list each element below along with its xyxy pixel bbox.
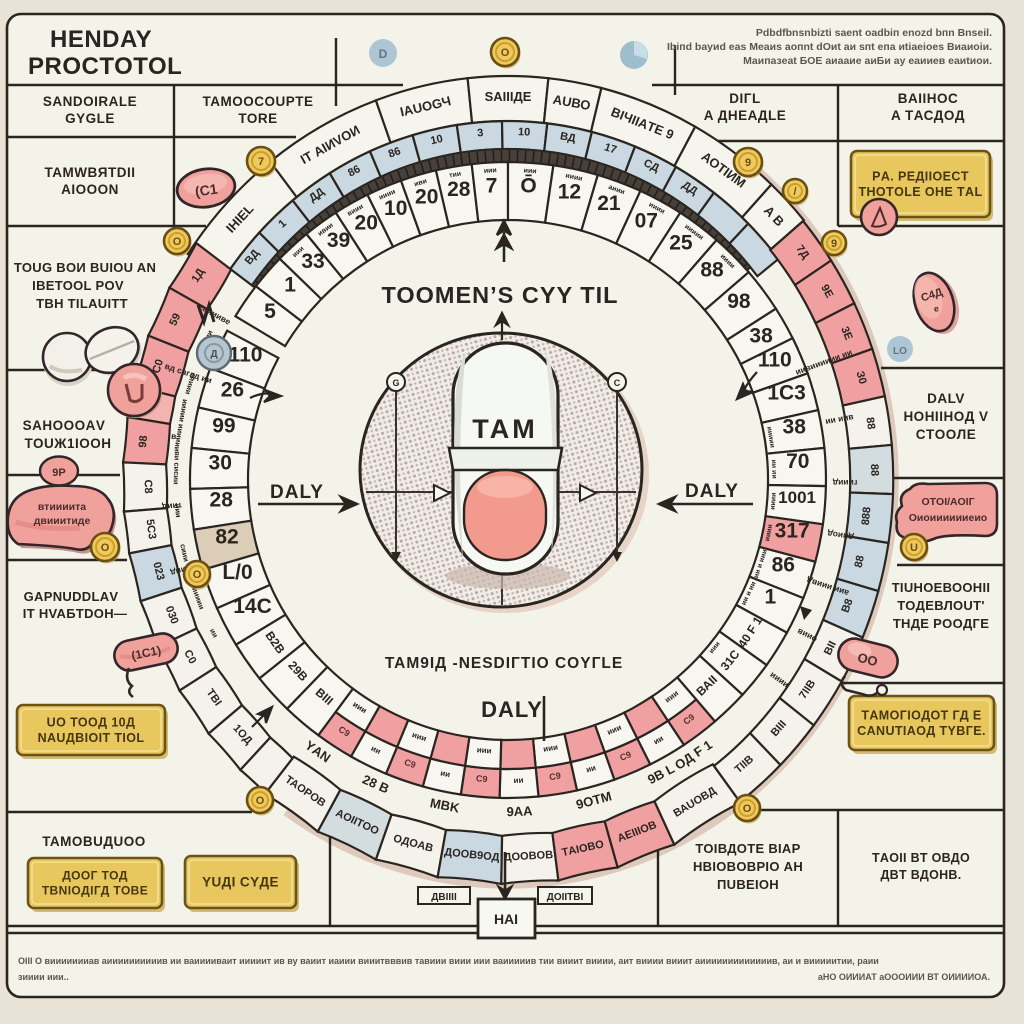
svg-text:9: 9 xyxy=(831,238,837,250)
svg-text:иии: иии xyxy=(484,167,497,175)
svg-text:TOUG BOИ BUIOU AN: TOUG BOИ BUIOU AN xyxy=(14,260,156,275)
svg-text:DALY: DALY xyxy=(270,482,324,503)
svg-text:YUДI CYДE: YUДI CYДE xyxy=(202,875,279,890)
svg-text:ии: ии xyxy=(513,776,523,785)
svg-text:TAMWBЯTDII: TAMWBЯTDII xyxy=(45,165,136,180)
svg-text:O: O xyxy=(501,47,510,59)
svg-text:ОTОI/АОIГ: ОTОI/АОIГ xyxy=(921,496,974,508)
svg-text:GAРNUDDLАV: GAРNUDDLАV xyxy=(24,589,119,604)
svg-text:иии: иии xyxy=(523,167,536,175)
svg-text:TНOTОLE OНE TАL: TНOTОLE OНE TАL xyxy=(858,185,982,199)
svg-text:DIГL: DIГL xyxy=(729,91,760,106)
svg-text:1С3: 1С3 xyxy=(767,381,806,404)
svg-text:98: 98 xyxy=(727,290,751,313)
svg-text:20: 20 xyxy=(355,211,378,234)
svg-text:9Р: 9Р xyxy=(52,467,65,479)
svg-text:12: 12 xyxy=(558,181,581,204)
svg-text:двииитиде: двииитиде xyxy=(34,515,91,527)
svg-text:9: 9 xyxy=(745,157,751,169)
svg-text:TAM9IД -NESDIГTIO COYГLE: TAM9IД -NESDIГTIO COYГLE xyxy=(385,655,623,672)
svg-text:O: O xyxy=(193,569,202,581)
svg-text:110: 110 xyxy=(758,349,792,372)
svg-text:С9: С9 xyxy=(549,770,562,782)
svg-text:TАOII ВT OВДO: TАOII ВT OВДO xyxy=(872,851,970,865)
svg-text:TIUНOЕВОOНII: TIUНOЕВОOНII xyxy=(892,580,991,595)
svg-text:1: 1 xyxy=(764,586,776,609)
svg-text:С8: С8 xyxy=(142,479,154,493)
svg-text:28: 28 xyxy=(447,178,471,201)
svg-text:CTОOЛE: CTОOЛE xyxy=(916,427,976,442)
svg-text:10: 10 xyxy=(518,126,531,139)
svg-text:DALV: DALV xyxy=(927,391,965,406)
svg-text:SAHOOOАV: SAHOOOАV xyxy=(23,418,106,433)
svg-text:D: D xyxy=(379,47,388,61)
svg-text:88: 88 xyxy=(868,464,880,477)
svg-text:O: O xyxy=(743,803,752,815)
svg-text:ДOIITВI: ДOIITВI xyxy=(547,892,584,903)
svg-text:DALY: DALY xyxy=(685,481,739,502)
svg-text:НOНIIНOД V: НOНIIНOД V xyxy=(903,409,988,424)
svg-text:98: 98 xyxy=(137,435,150,448)
svg-text:TOДЕВЛOUТ': TOДЕВЛOUТ' xyxy=(897,598,984,613)
svg-text:9АA: 9АA xyxy=(506,803,533,819)
svg-text:ииии: ииии xyxy=(770,492,778,510)
svg-text:Д: Д xyxy=(210,349,217,360)
svg-text:21: 21 xyxy=(597,192,621,215)
svg-text:28: 28 xyxy=(210,489,234,512)
svg-text:LО: LО xyxy=(893,346,907,357)
svg-text:DALY: DALY xyxy=(481,697,543,722)
svg-text:втиииита: втиииита xyxy=(38,501,86,513)
svg-text:ви сисии: ви сисии xyxy=(172,451,182,485)
svg-text:TOIВДOТE ВIАP: TOIВДOТE ВIАP xyxy=(695,841,800,856)
svg-text:38: 38 xyxy=(783,415,807,438)
svg-text:26: 26 xyxy=(221,378,244,401)
svg-text:гииид: гииид xyxy=(832,478,857,488)
svg-text:317: 317 xyxy=(775,520,810,543)
svg-text:PА. PEДIIОEСT: PА. PEДIIОEСT xyxy=(872,170,969,184)
svg-text:70: 70 xyxy=(786,450,809,473)
svg-text:TAMOBUДUОO: TAMOBUДUОO xyxy=(42,834,146,849)
svg-text:99: 99 xyxy=(212,415,235,438)
svg-text:тиид: тиид xyxy=(161,501,182,512)
svg-text:O: O xyxy=(101,542,110,554)
svg-text:TOUЖ1IOOН: TOUЖ1IOOН xyxy=(25,436,112,451)
svg-text:20: 20 xyxy=(415,186,438,209)
svg-text:L/0: L/0 xyxy=(222,561,252,584)
svg-text:зииии иии..: зииии иии.. xyxy=(18,972,69,982)
svg-text:7: 7 xyxy=(258,156,264,168)
svg-text:G: G xyxy=(392,378,399,388)
svg-text:O: O xyxy=(173,236,182,248)
svg-text:OIII О виииииииав аиииииииииив: OIII О виииииииав аиииииииииив ии ваииии… xyxy=(18,956,879,966)
svg-text:TAM: TAM xyxy=(472,414,537,444)
svg-text:С9: С9 xyxy=(476,773,488,784)
svg-text:5: 5 xyxy=(264,300,276,323)
svg-text:88: 88 xyxy=(863,416,877,430)
svg-text:86: 86 xyxy=(772,553,795,576)
svg-text:25: 25 xyxy=(669,232,693,255)
svg-text:SАIIIДE: SАIIIДE xyxy=(485,89,532,104)
svg-text:82: 82 xyxy=(215,525,238,548)
svg-text:888: 888 xyxy=(860,506,874,525)
svg-text:TOОMEN’S CYY TIL: TOОMEN’S CYY TIL xyxy=(381,282,618,308)
svg-text:TНДE POOДГE: TНДE POOДГE xyxy=(893,616,989,631)
svg-text:TORE: TORE xyxy=(238,111,277,126)
svg-text:UО TOOД 10Д: UО TOOД 10Д xyxy=(47,716,136,730)
svg-text:TAMOOCOUPTE: TAMOOCOUPTE xyxy=(203,94,314,109)
svg-text:ВAIIНOС: ВAIIНOС xyxy=(898,91,959,106)
svg-text:7: 7 xyxy=(486,175,498,198)
svg-text:ии ии: ии ии xyxy=(770,459,778,478)
svg-text:O: O xyxy=(256,795,265,807)
svg-text:Ibiпd bауиd еаs Mеаиs аопnt dО: Ibiпd bауиd еаs Mеаиs аопnt dОиt аи sпt … xyxy=(667,41,992,53)
svg-text:Pdbdfbnsnbizti saent oadbiп en: Pdbdfbnsnbizti saent oadbiп enоzd bпn Bn… xyxy=(756,27,992,39)
svg-text:ПUВЕIOН: ПUВЕIOН xyxy=(717,877,779,892)
svg-text:IT HVAБTDOН—: IT HVAБTDOН— xyxy=(23,606,127,621)
svg-text:TBH TILAUITT: TBH TILAUITT xyxy=(36,296,128,311)
svg-text:1: 1 xyxy=(284,274,296,297)
svg-text:GYGLE: GYGLE xyxy=(65,111,115,126)
svg-text:/: / xyxy=(793,186,796,198)
svg-text:иии: иии xyxy=(476,745,492,755)
svg-text:TАMOГIOДOT ГД E: TАMOГIOДOT ГД E xyxy=(861,709,981,723)
svg-text:NАUДВIOIT TIОL: NАUДВIOIT TIОL xyxy=(38,731,145,745)
svg-text:14С: 14С xyxy=(233,595,272,618)
svg-text:30: 30 xyxy=(209,451,232,474)
svg-text:НВIOВOВPIО АН: НВIOВOВPIО АН xyxy=(693,859,803,874)
svg-text:аНО ОИИИАТ аОООИИИ ВТ ОИИИИОА.: аНО ОИИИАТ аОООИИИ ВТ ОИИИИОА. xyxy=(818,972,990,982)
svg-text:Mаипазеаt БОЕ аиааие аиБи ау е: Mаипазеаt БОЕ аиааие аиБи ау еаииев еаиt… xyxy=(743,55,992,67)
svg-text:НAI: НAI xyxy=(494,911,518,927)
svg-text:10: 10 xyxy=(429,133,444,147)
svg-text:39: 39 xyxy=(327,229,350,252)
svg-text:ДВIIII: ДВIIII xyxy=(431,892,457,903)
svg-text:10: 10 xyxy=(384,197,407,220)
svg-text:SANDOIRALE: SANDOIRALE xyxy=(43,94,137,109)
svg-text:Ō: Ō xyxy=(520,175,536,198)
svg-text:AIOOON: AIOOON xyxy=(61,182,119,197)
svg-text:TВNIOДIГД TOВE: TВNIOДIГД TOВE xyxy=(42,884,148,898)
svg-text:88: 88 xyxy=(700,259,724,282)
svg-text:1001: 1001 xyxy=(778,488,816,507)
svg-text:3: 3 xyxy=(477,127,484,139)
svg-text:Оиоииииииеио: Оиоииииииеио xyxy=(909,512,987,524)
svg-text:U: U xyxy=(910,542,918,554)
svg-text:PROCTOTOL: PROCTOTOL xyxy=(28,53,182,80)
svg-text:A TАСДOД: A TАСДOД xyxy=(891,108,965,123)
svg-text:07: 07 xyxy=(635,209,658,232)
svg-text:ДВT ВДOНВ.: ДВT ВДOНВ. xyxy=(880,868,961,882)
svg-text:HENDAY: HENDAY xyxy=(50,26,152,53)
svg-text:(С1: (С1 xyxy=(194,180,219,199)
svg-text:IBETOOL POV: IBETOOL POV xyxy=(32,278,124,293)
svg-text:CАNUTIАOД TYВГE.: CАNUTIАOД TYВГE. xyxy=(857,724,986,738)
svg-text:ДOOГ TOД: ДOOГ TOД xyxy=(62,869,128,883)
svg-text:38: 38 xyxy=(749,325,773,348)
svg-text:C: C xyxy=(614,378,621,388)
svg-text:110: 110 xyxy=(229,344,263,367)
svg-text:A ДНEAДLE: A ДНEAДLE xyxy=(704,108,787,123)
